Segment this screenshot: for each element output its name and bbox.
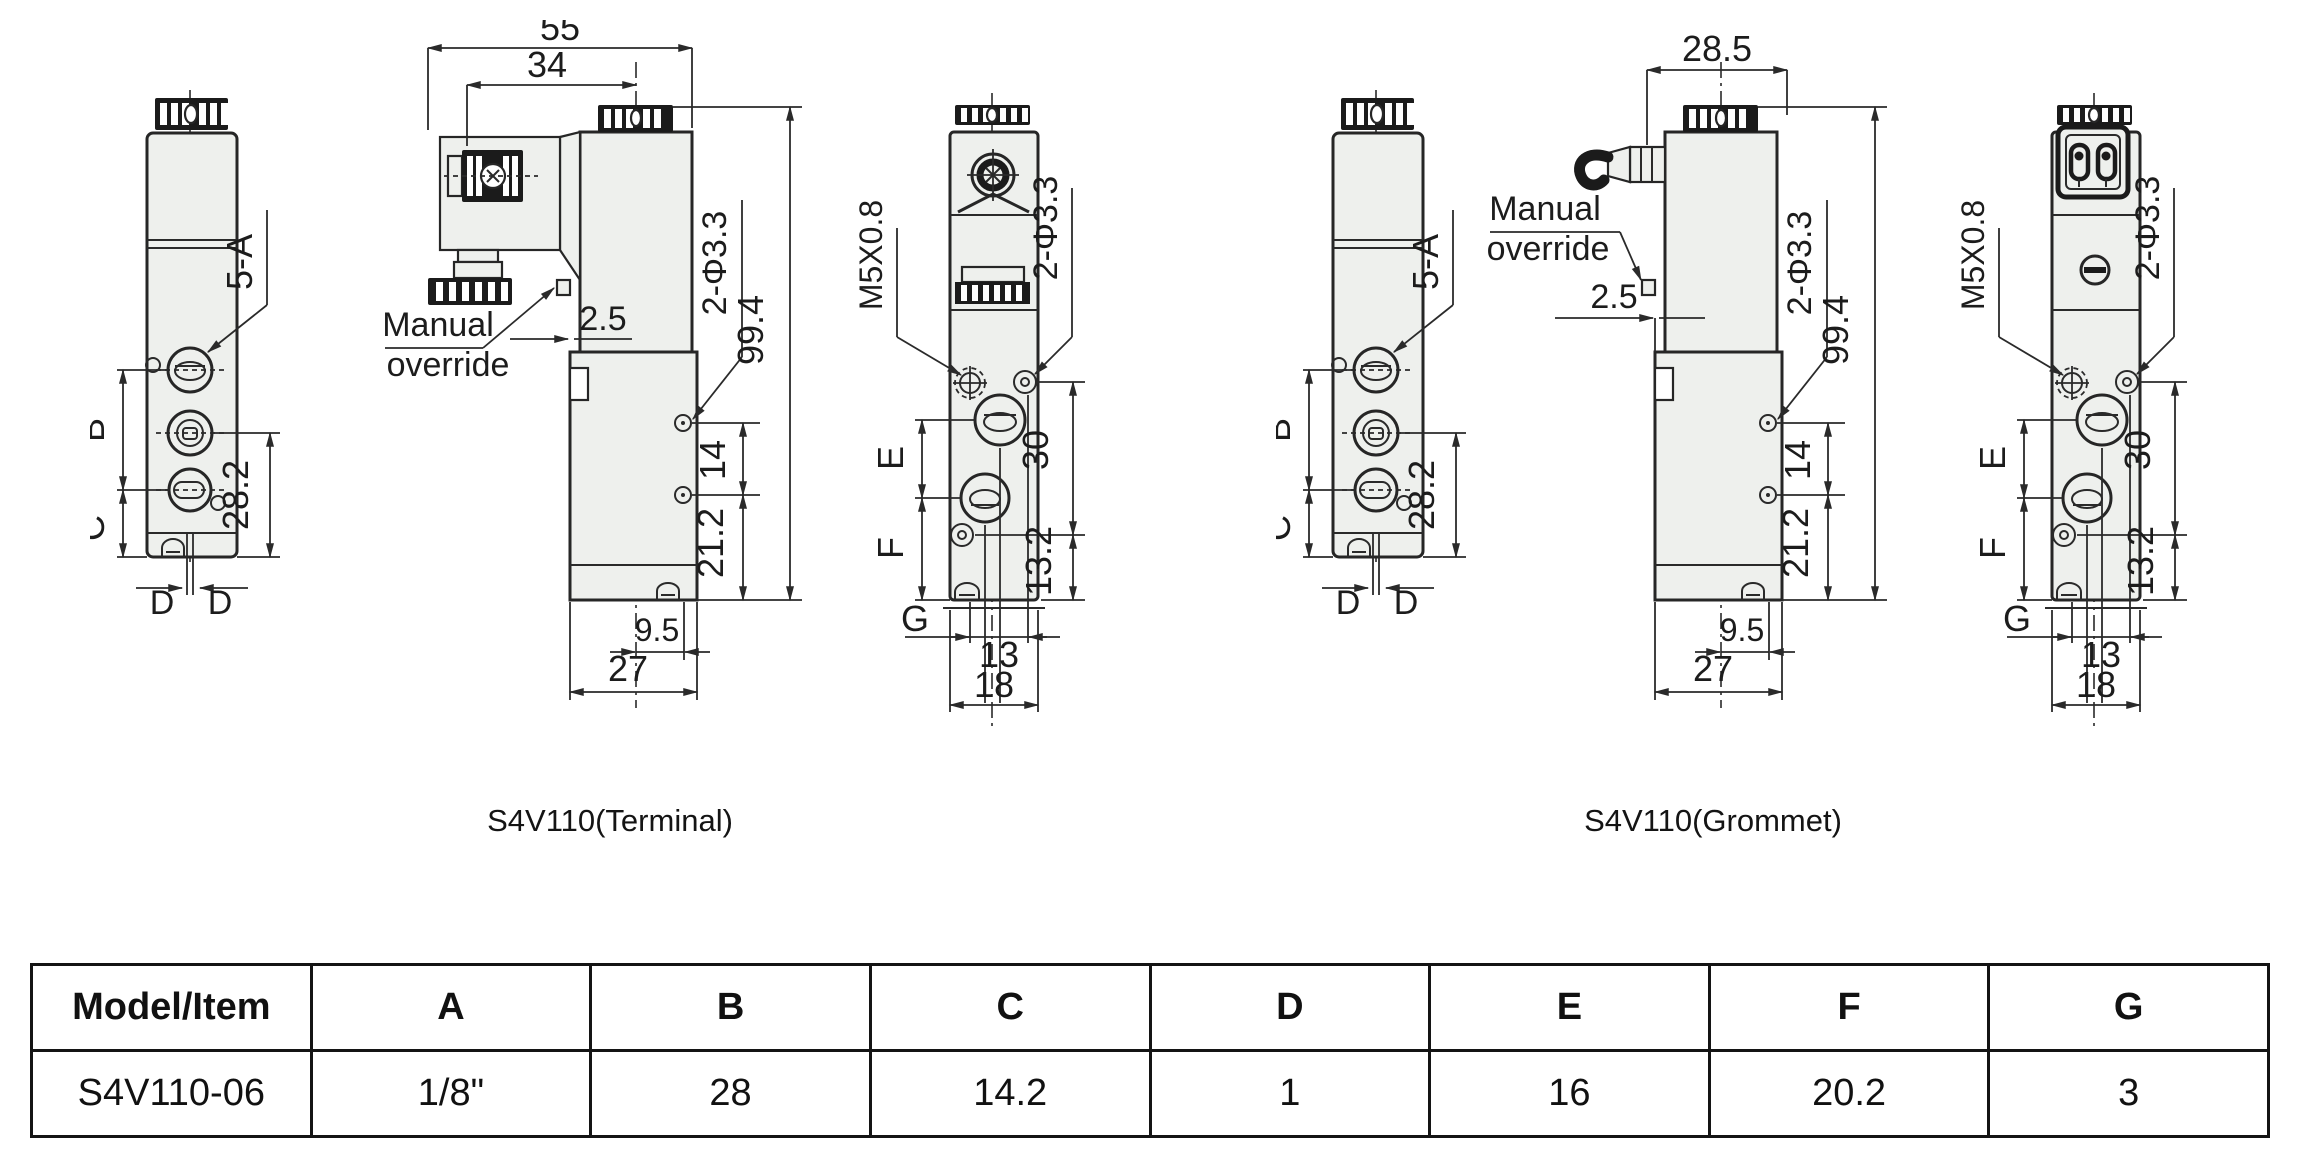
cell-a: 1/8" — [311, 1051, 591, 1137]
dim-99-4-label: 99.4 — [1815, 295, 1856, 365]
dim-13-2-label: 13.2 — [2120, 526, 2161, 596]
manual-override-label-line2: override — [1487, 230, 1610, 268]
dim-21-2-label: 21.2 — [690, 508, 731, 578]
dim-14-label: 14 — [692, 440, 733, 480]
dim-34-label: 34 — [527, 44, 567, 85]
thread-m5-label: M5X0.8 — [1957, 200, 1991, 310]
terminal-caption: S4V110(Terminal) — [480, 803, 740, 839]
valve-dimension-drawing: 5-A B C 28.2 D D — [0, 0, 2300, 1154]
dim-2xd3-3-label: 2-Φ3.3 — [1781, 211, 1819, 316]
grommet-wire-outlet — [1580, 147, 1665, 185]
terminal-end-view: M5X0.8 2-Φ3.3 E F G 30 13.2 13 18 — [855, 85, 1105, 765]
terminal-front-view — [90, 90, 320, 620]
dim-f-label: F — [1972, 537, 2013, 559]
manual-override-label-line2: override — [387, 346, 510, 384]
dim-e-label: E — [870, 446, 911, 470]
cell-d: 1 — [1150, 1051, 1430, 1137]
dim-2xd3-3-label: 2-Φ3.3 — [696, 211, 734, 316]
dim-21-2-label: 21.2 — [1775, 508, 1816, 578]
dim-9-5-label: 9.5 — [635, 612, 679, 648]
manual-override-label-line1: Manual — [382, 306, 494, 344]
manual-override-label-line1: Manual — [1489, 190, 1601, 228]
col-header-c: C — [870, 965, 1150, 1051]
dim-30-label: 30 — [2117, 430, 2158, 470]
col-header-d: D — [1150, 965, 1430, 1051]
dim-28-5-label: 28.5 — [1682, 28, 1752, 69]
cell-g: 3 — [1989, 1051, 2269, 1137]
grommet-caption: S4V110(Grommet) — [1578, 803, 1848, 839]
col-header-model-item: Model/Item — [32, 965, 312, 1051]
dim-2xd3-3-end-label: 2-Φ3.3 — [2129, 176, 2167, 281]
dim-2-5-label: 2.5 — [1590, 278, 1637, 316]
col-header-g: G — [1989, 965, 2269, 1051]
dim-g-label: G — [901, 598, 929, 639]
dim-g-label: G — [2003, 598, 2031, 639]
cell-b: 28 — [591, 1051, 871, 1137]
dim-2xd3-3-end-label: 2-Φ3.3 — [1027, 176, 1065, 281]
dim-99-4-label: 99.4 — [730, 295, 771, 365]
col-header-b: B — [591, 965, 871, 1051]
dimension-table: Model/Item A B C D E F G S4V110-06 1/8" … — [30, 963, 2270, 1138]
dim-27-label: 27 — [1693, 648, 1733, 689]
grommet-end-view: M5X0.8 2-Φ3.3 E F G 30 13.2 13 18 — [1957, 85, 2207, 765]
dim-9-5-label: 9.5 — [1720, 612, 1764, 648]
dim-2-5-label: 2.5 — [579, 300, 626, 338]
col-header-e: E — [1430, 965, 1710, 1051]
dim-13-2-label: 13.2 — [1018, 526, 1059, 596]
cell-model: S4V110-06 — [32, 1051, 312, 1137]
dim-f-label: F — [870, 537, 911, 559]
dim-27-label: 27 — [608, 648, 648, 689]
cell-c: 14.2 — [870, 1051, 1150, 1137]
dim-18-label: 18 — [974, 664, 1014, 705]
col-header-a: A — [311, 965, 591, 1051]
table-row: S4V110-06 1/8" 28 14.2 1 16 20.2 3 — [32, 1051, 2269, 1137]
grommet-side-view: 28.5 Manual override 2.5 2-Φ3.3 99.4 14 … — [1455, 20, 1895, 720]
dim-14-label: 14 — [1777, 440, 1818, 480]
thread-m5-label: M5X0.8 — [855, 200, 889, 310]
table-header-row: Model/Item A B C D E F G — [32, 965, 2269, 1051]
terminal-side-view: 55 34 Manual override 2.5 2-Φ3.3 99.4 14… — [370, 20, 810, 720]
dim-18-label: 18 — [2076, 664, 2116, 705]
cell-f: 20.2 — [1709, 1051, 1989, 1137]
cell-e: 16 — [1430, 1051, 1710, 1137]
col-header-f: F — [1709, 965, 1989, 1051]
dim-e-label: E — [1972, 446, 2013, 470]
dim-30-label: 30 — [1015, 430, 1056, 470]
